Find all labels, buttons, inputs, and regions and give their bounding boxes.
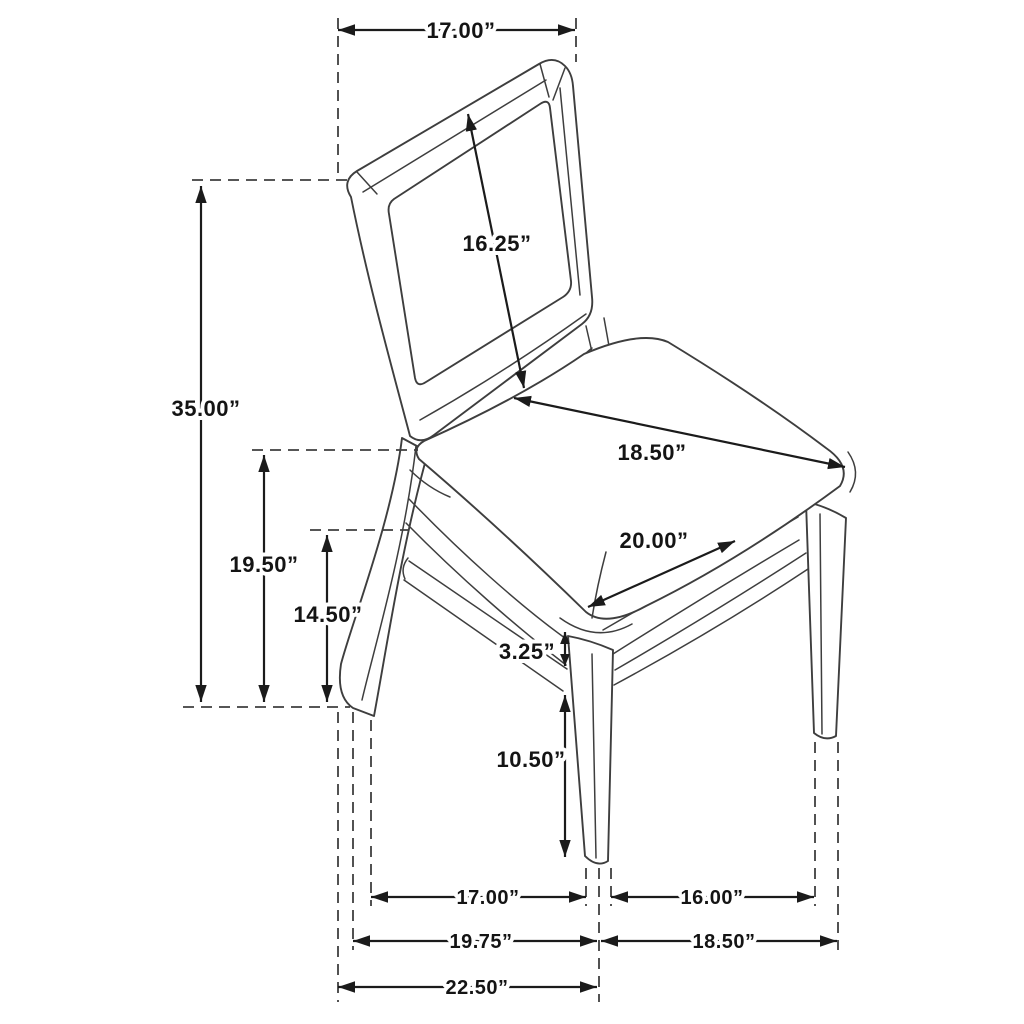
- front-left-leg: [568, 636, 613, 864]
- dim-label-seat-frame-height: 14.50”: [293, 602, 362, 627]
- dim-overall-height: 35.00”: [171, 186, 240, 702]
- dim-overall-depth: 22.50”: [338, 977, 597, 999]
- front-right-leg: [806, 502, 846, 738]
- dim-footprint-depth: 19.75”: [353, 931, 597, 953]
- dim-back-width: 17.00”: [338, 18, 575, 43]
- dim-label-apron-thickness: 3.25”: [499, 639, 555, 664]
- dim-seat-back-height: 19.50”: [229, 455, 298, 702]
- dim-label-seat-depth: 20.00”: [619, 528, 688, 553]
- dim-label-footprint-depth: 19.75”: [449, 931, 512, 953]
- back-left-leg: [340, 438, 428, 716]
- dim-label-back-width: 17.00”: [426, 18, 495, 43]
- dim-label-footprint-width: 18.50”: [692, 931, 755, 953]
- dim-label-seat-width: 18.50”: [617, 440, 686, 465]
- dim-label-seat-back-height: 19.50”: [229, 552, 298, 577]
- dim-feet-span-side: 17.00”: [371, 887, 586, 909]
- dim-footprint-width: 18.50”: [601, 931, 837, 953]
- cushion-seam-right: [848, 452, 856, 492]
- dim-label-overall-height: 35.00”: [171, 396, 240, 421]
- chair-dimension-diagram: 17.00” 16.25” 35.00” 19.50” 14.50” 18.50…: [0, 0, 1024, 1024]
- dim-label-feet-span-front: 16.00”: [680, 887, 743, 909]
- dim-label-back-panel-height: 16.25”: [462, 231, 531, 256]
- chair-line-art: [340, 60, 856, 864]
- dim-label-feet-span-side: 17.00”: [456, 887, 519, 909]
- dim-label-front-leg-clearance: 10.50”: [496, 747, 565, 772]
- dim-feet-span-front: 16.00”: [611, 887, 814, 909]
- diagram-canvas: 17.00” 16.25” 35.00” 19.50” 14.50” 18.50…: [0, 0, 1024, 1024]
- dim-front-leg-clearance: 10.50”: [496, 695, 565, 857]
- left-stretcher-end-cap: [403, 558, 408, 579]
- back-stile-post-a: [586, 326, 592, 352]
- back-stile-post-b: [604, 318, 609, 346]
- dim-label-overall-depth: 22.50”: [445, 977, 508, 999]
